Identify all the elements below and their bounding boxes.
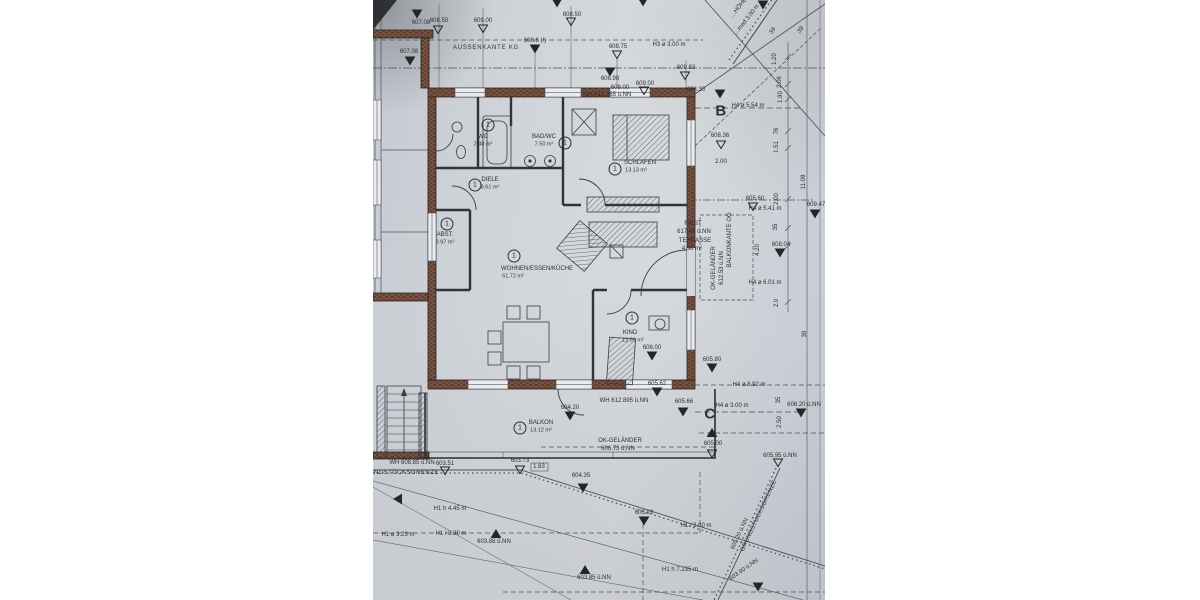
annotation-label: 2.0 [774, 299, 780, 307]
elevation-marker-filled-icon [795, 408, 807, 419]
annotation-label: 609.47 [807, 202, 825, 208]
annotation-label: H1 / 3.30 m [435, 531, 466, 537]
annotation-label: H3 ø 3.00 m [652, 42, 685, 48]
direction-arrow-icon [392, 494, 404, 505]
annotation-label: 2.00 [715, 159, 727, 165]
elevation-marker-filled-icon [646, 351, 658, 362]
annotation-label: 1.90 [778, 91, 784, 103]
annotation-label: 39 [797, 26, 806, 35]
annotation-label: H4 ø 3.00 m [715, 403, 748, 409]
section-marker: B [715, 104, 726, 119]
annotation-label: WH 612.365 ü.NN [583, 92, 632, 98]
annotation-label: 603.85 ü.NN [577, 575, 611, 581]
annotation-label: GRUNDSTÜCKSGRENZE [373, 470, 439, 476]
elevation-marker-open-icon [477, 24, 489, 35]
annotation-label: OK-GELÄNDER [711, 246, 717, 290]
elevation-marker-filled-icon [774, 248, 786, 259]
room-area-label: 8.61 m² [481, 185, 500, 191]
elevation-marker-filled-icon [529, 44, 541, 55]
annotation-label: 2.50 [777, 416, 783, 428]
annotation-label: 608.50 [430, 18, 448, 24]
annotation-label: H1 h 7.235 m [662, 567, 698, 573]
room-area-label: 3.97 m² [436, 240, 455, 246]
elevation-marker-open-icon [638, 86, 650, 97]
annotation-label: H4 ø 8.92 m [732, 382, 765, 388]
annotation-label: 1.20 [772, 53, 778, 65]
annotation-label: 11.08 [801, 175, 807, 190]
room-number-badge: 1 [626, 312, 639, 325]
room-label: SCHLAFEN [624, 160, 656, 166]
annotation-label: 603.73 [511, 458, 529, 464]
annotation-label: OK-GELÄNDER [598, 438, 642, 444]
elevation-marker-filled-icon [564, 411, 576, 422]
room-number-badge: 1 [441, 218, 454, 231]
elevation-marker-up-icon [706, 428, 718, 439]
room-area-label: 13.12 m² [530, 428, 552, 434]
elevation-marker-up-icon [579, 565, 591, 576]
elevation-marker-filled-icon [404, 56, 416, 67]
annotation-label: 39 [802, 331, 808, 338]
elevation-marker-filled-icon [714, 89, 726, 100]
elevation-marker-open-icon [747, 202, 759, 213]
annotation-label: 35 [776, 397, 782, 404]
annotation-label: 1.51 [774, 141, 780, 153]
elevation-marker-open-icon [565, 17, 577, 28]
floorplan-photo: 607.08608.50609.00608.50608.6 (!)AUSSENK… [373, 0, 825, 600]
elevation-marker-open-icon [715, 140, 727, 151]
section-marker: C [704, 407, 715, 422]
elevation-marker-open-icon [514, 465, 526, 476]
elevation-marker-filled-icon [638, 516, 650, 527]
annotation-label: 607.08 [412, 20, 430, 26]
elevation-marker-filled-icon [604, 67, 616, 78]
annotation-label: 39 [769, 27, 778, 36]
annotation-label: H1 / 3.00 m [680, 523, 711, 529]
annotation-label: WH 608.85 ü.NN [389, 460, 434, 466]
elevation-marker-filled-icon [757, 0, 769, 11]
elevation-marker-filled-icon [677, 407, 689, 418]
room-label: WC [478, 134, 488, 140]
annotation-label: H1 h 4.45 m [434, 506, 467, 512]
annotation-label: 605.00 [704, 441, 722, 447]
annotation-label: WH 612.895 ü.NN [600, 398, 649, 404]
annotation-label: 608.30 [687, 87, 705, 93]
annotation-label: 608.00 [611, 85, 629, 91]
elevation-marker-filled-icon [809, 209, 821, 220]
annotation-label: 605.66 [675, 399, 693, 405]
room-label: BAD/WC [532, 134, 556, 140]
room-label: BALKON [529, 420, 553, 426]
annotation-label: BALKONKANTE OG [727, 212, 733, 267]
elevation-marker-filled-icon [551, 0, 563, 9]
room-area-label: 13.13 m² [625, 168, 647, 174]
room-area-label: 7.50 m² [535, 142, 554, 148]
annotation-label: TERRASSE [679, 238, 711, 244]
room-number-badge: 1 [469, 179, 482, 192]
annotation-label: 603.90 ü.NN [728, 558, 759, 582]
elevation-marker-filled-icon [411, 9, 423, 20]
room-number-badge: 1 [514, 422, 527, 435]
elevation-marker-open-icon [432, 25, 444, 36]
annotation-label: 35 [773, 224, 779, 231]
annotation-label: FIRST [684, 221, 701, 227]
annotation-label: 608.36 [711, 133, 729, 139]
annotation-label: 607.08 [400, 49, 418, 55]
elevation-marker-up-icon [490, 529, 502, 540]
annotation-label: H1 ø 3.23 m [381, 532, 414, 538]
annotation-label: 617.84 ü.NN [677, 229, 711, 235]
elevation-marker-filled-icon [651, 387, 663, 398]
annotation-label: GRUNDSTÜCKSGRENZE [740, 479, 778, 552]
room-label: KIND [623, 330, 637, 336]
elevation-marker-filled-icon [706, 363, 718, 374]
annotation-label: AUSSENKANTE KG [453, 45, 519, 51]
annotation-label: 603.88 ü.NN [477, 539, 511, 545]
annotation-label: 4.20 [755, 244, 761, 256]
annotation-label: 2.00 [774, 193, 780, 205]
elevation-marker-filled-icon [637, 0, 649, 8]
room-number-badge: 1 [508, 250, 521, 263]
screenshot-canvas: 607.08608.50609.00608.50608.6 (!)AUSSENK… [0, 0, 1200, 600]
annotation-label: H4 ø 6.01 m [748, 280, 781, 286]
room-label: ABST. [437, 232, 454, 238]
elevation-marker-open-icon [611, 50, 623, 61]
elevation-marker-open-icon [439, 466, 451, 477]
elevation-marker-open-icon [679, 71, 691, 82]
elevation-marker-filled-icon [752, 582, 764, 593]
annotation-label: 76 [774, 128, 780, 135]
annotation-label: 4.98 m² [682, 246, 702, 252]
annotation-label: H4 ø 5.54 m [731, 103, 764, 109]
annotation-label: 612.53 ü.NN [719, 251, 725, 285]
room-number-badge: 1 [482, 119, 495, 132]
elevation-marker-open-icon [772, 458, 784, 469]
room-number-badge: 1 [609, 163, 622, 176]
labels-layer: 607.08608.50609.00608.50608.6 (!)AUSSENK… [373, 0, 825, 600]
elevation-marker-filled-icon [577, 483, 589, 494]
room-label: WOHNEN/ESSEN/KÜCHE [501, 266, 573, 272]
room-area-label: 51.72 m² [502, 274, 524, 280]
annotation-label: 2.06 [777, 76, 783, 88]
room-number-badge: 1 [559, 137, 572, 150]
room-label: DIELE [481, 177, 498, 183]
elevation-marker-open-icon [706, 449, 718, 460]
room-area-label: 2.40 m² [474, 142, 493, 148]
room-area-label: 12.99 m² [622, 338, 644, 344]
annotation-label: 1.63 [533, 464, 545, 470]
annotation-label: 604.35 [572, 473, 590, 479]
annotation-label: 606.73 ü.NN [601, 446, 635, 452]
